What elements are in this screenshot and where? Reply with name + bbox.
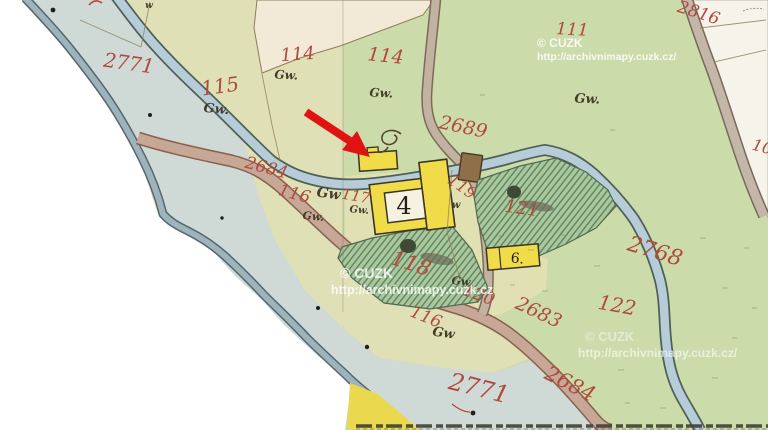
watermark-cuzk: © CUZK: [585, 329, 635, 344]
building-number-6: 6.: [510, 250, 525, 267]
building-number-4: 4: [396, 192, 411, 220]
cadastral-map: 2771115114114111281610268926841161171191…: [0, 0, 768, 430]
watermark-url: http://archivnimapy.cuzk.cz: [331, 283, 493, 297]
watermark-cuzk: © CUZK: [537, 36, 583, 50]
landuse-mark: Gw.: [302, 209, 325, 224]
parcel-number-114: 114: [280, 43, 316, 66]
parcel-number-114: 114: [366, 43, 404, 69]
landuse-mark: Gw.: [369, 85, 393, 100]
watermark-url: http://archivnimapy.cuzk.cz/: [578, 346, 738, 360]
watermark-cuzk: © CUZK: [340, 265, 393, 281]
landuse-mark: Gw: [431, 325, 456, 343]
map-stage: 2771115114114111281610268926841161171191…: [0, 0, 768, 430]
landuse-mark: w: [145, 1, 153, 11]
landuse-mark: Gw.: [274, 67, 298, 82]
landuse-mark: w: [452, 200, 461, 211]
landuse-mark: Gw.: [203, 101, 230, 118]
watermark-url: http://archivnimapy.cuzk.cz/: [537, 51, 676, 63]
landuse-mark: Gw.: [349, 204, 370, 217]
landuse-mark: Gw.: [574, 91, 600, 107]
